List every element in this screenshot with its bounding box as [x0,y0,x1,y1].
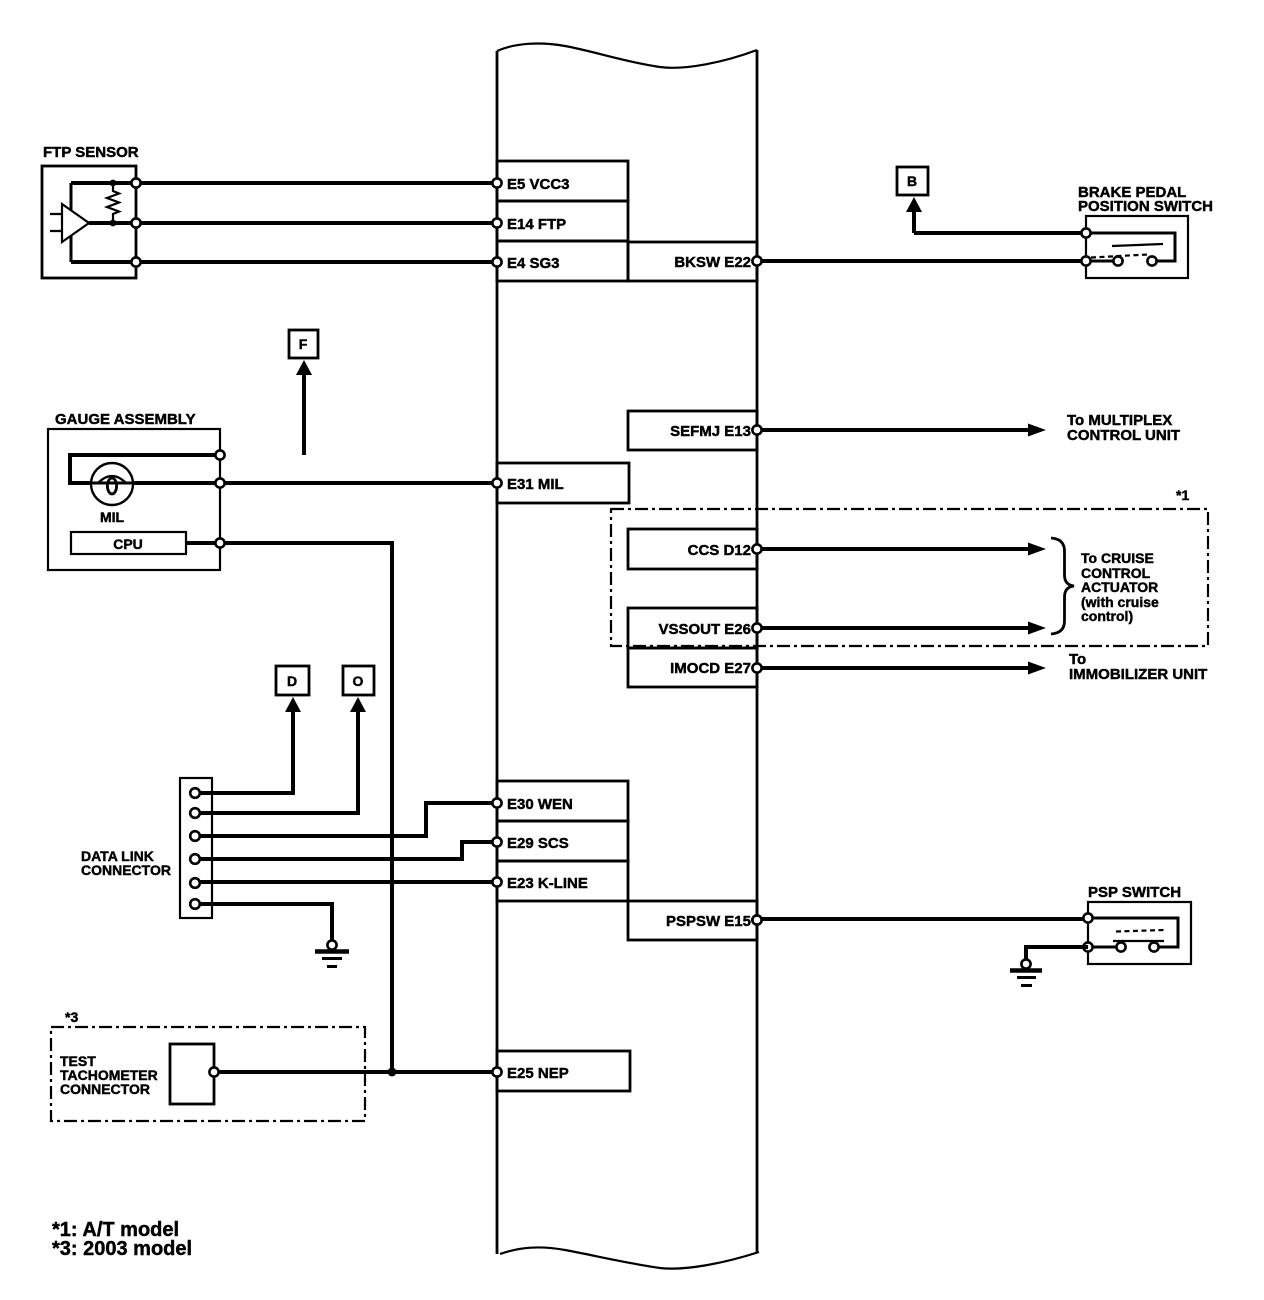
svg-text:E29 SCS: E29 SCS [507,835,569,852]
svg-text:*3: *3 [65,1009,78,1025]
svg-text:E31 MIL: E31 MIL [507,476,564,493]
svg-text:E4 SG3: E4 SG3 [507,255,560,272]
svg-text:IMMOBILIZER UNIT: IMMOBILIZER UNIT [1069,666,1207,683]
svg-text:F: F [299,336,308,352]
svg-text:control): control) [1081,608,1133,624]
svg-text:VSSOUT E26: VSSOUT E26 [658,621,751,638]
svg-text:PSPSW E15: PSPSW E15 [666,913,751,930]
svg-text:CPU: CPU [113,536,143,552]
svg-text:CONNECTOR: CONNECTOR [60,1081,150,1097]
svg-text:D: D [287,673,297,689]
svg-text:IMOCD E27: IMOCD E27 [670,660,751,677]
svg-text:E5 VCC3: E5 VCC3 [507,176,570,193]
svg-text:E30 WEN: E30 WEN [507,796,573,813]
svg-text:PSP SWITCH: PSP SWITCH [1088,884,1181,901]
svg-text:MIL: MIL [100,509,125,525]
svg-text:ACTUATOR: ACTUATOR [1081,579,1158,595]
svg-text:CONNECTOR: CONNECTOR [81,862,171,878]
svg-text:E23 K-LINE: E23 K-LINE [507,875,588,892]
svg-text:O: O [353,673,364,689]
svg-text:SEFMJ E13: SEFMJ E13 [670,423,751,440]
svg-text:CCS D12: CCS D12 [688,542,751,559]
svg-text:*3: 2003 model: *3: 2003 model [52,1238,192,1260]
svg-text:GAUGE ASSEMBLY: GAUGE ASSEMBLY [55,411,196,428]
svg-text:POSITION SWITCH: POSITION SWITCH [1078,198,1213,215]
svg-text:B: B [907,173,917,189]
svg-text:CONTROL UNIT: CONTROL UNIT [1067,427,1180,444]
svg-text:BKSW E22: BKSW E22 [674,254,751,271]
svg-text:To CRUISE: To CRUISE [1081,550,1154,566]
svg-text:E14 FTP: E14 FTP [507,216,566,233]
svg-text:FTP SENSOR: FTP SENSOR [43,144,139,161]
svg-text:E25 NEP: E25 NEP [507,1065,569,1082]
svg-text:*1: *1 [1176,487,1189,503]
